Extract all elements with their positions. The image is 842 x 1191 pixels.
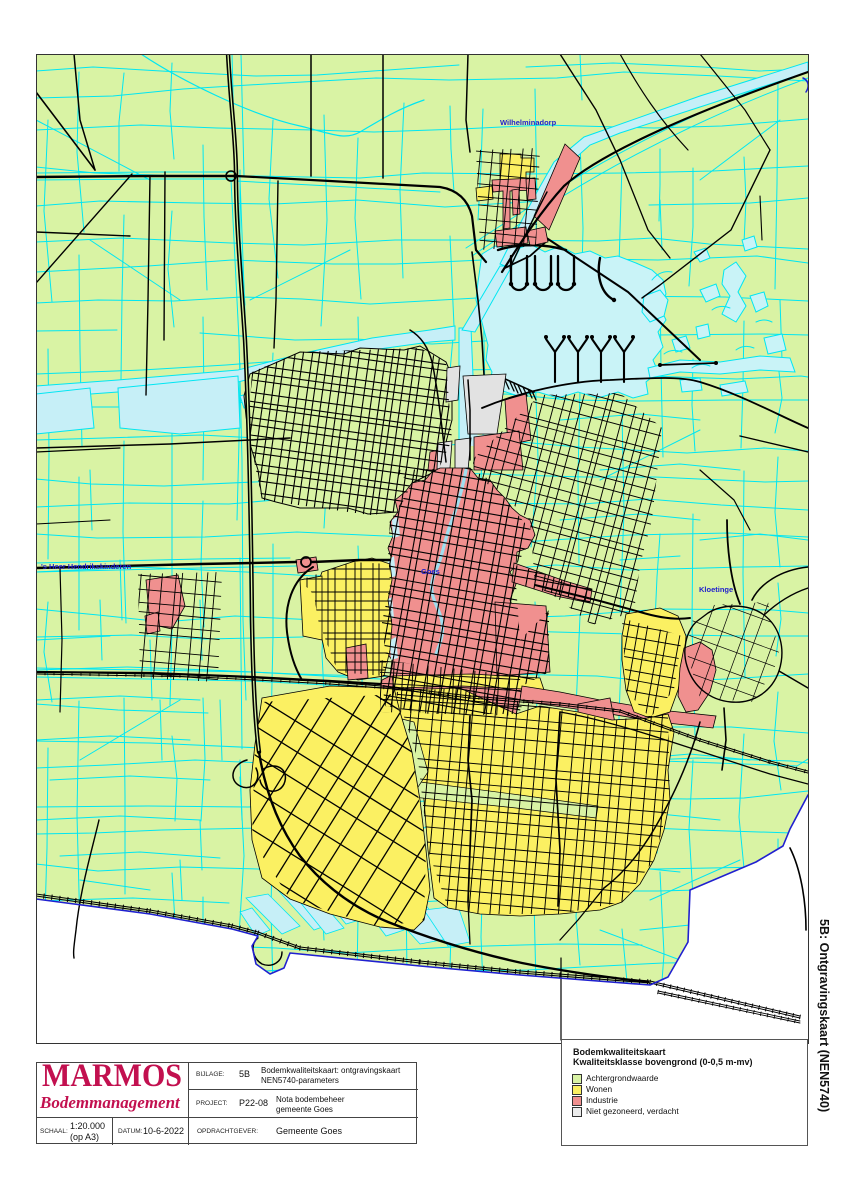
svg-text:'s Heer Hendrikskinderen: 's Heer Hendrikskinderen <box>41 562 132 571</box>
svg-text:Wilhelminadorp: Wilhelminadorp <box>500 118 557 127</box>
svg-text:Goes: Goes <box>421 567 440 576</box>
svg-text:Kloetinge: Kloetinge <box>699 585 733 594</box>
